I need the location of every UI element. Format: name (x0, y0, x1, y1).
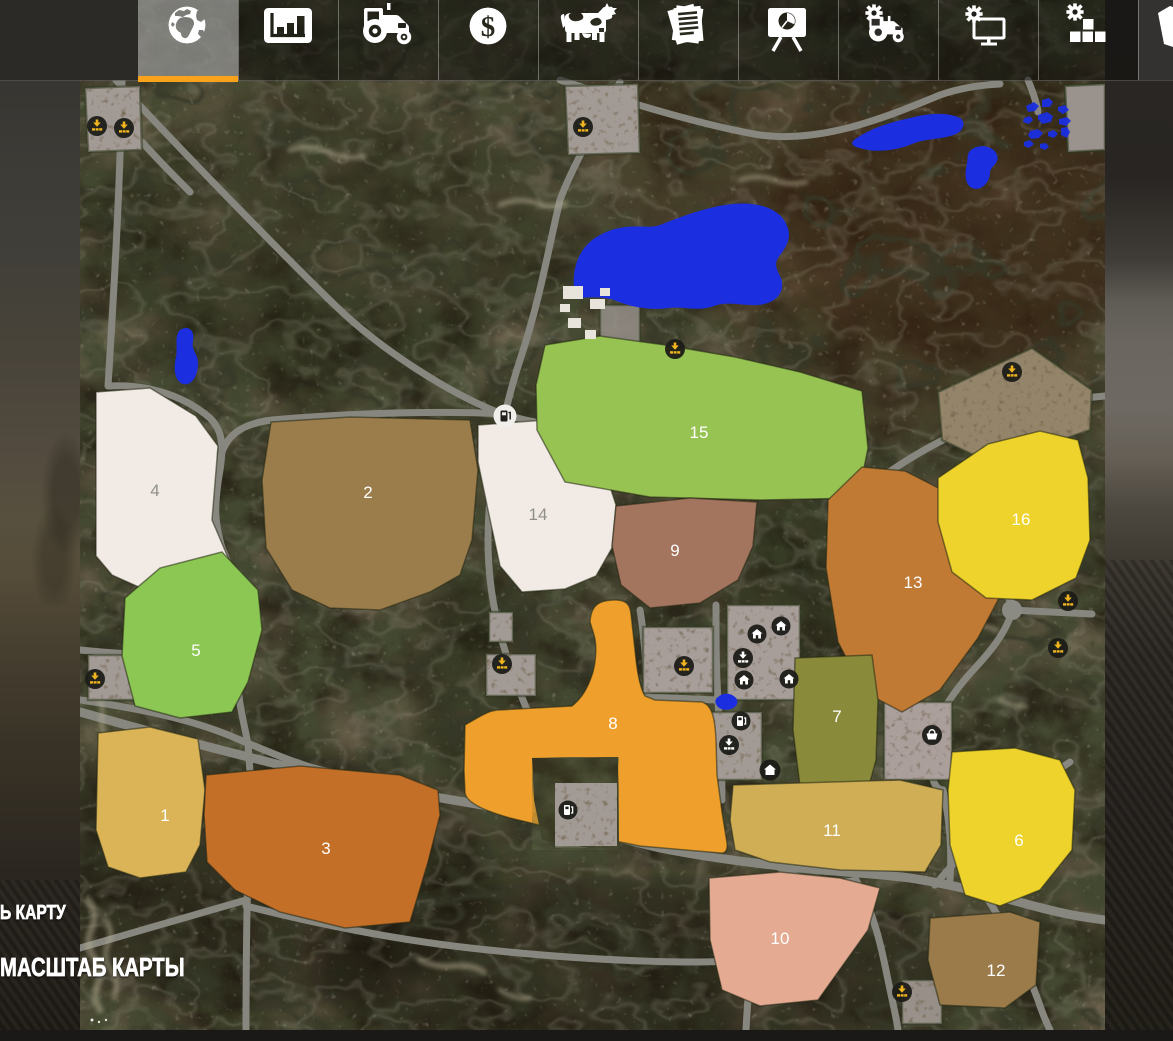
svg-text:6: 6 (1014, 831, 1023, 850)
svg-text:3: 3 (321, 839, 330, 858)
svg-text:8: 8 (608, 714, 617, 733)
svg-text:13: 13 (904, 573, 923, 592)
svg-text:5: 5 (191, 641, 200, 660)
svg-text:4: 4 (150, 481, 159, 500)
svg-text:10: 10 (771, 929, 790, 948)
svg-text:1: 1 (160, 806, 169, 825)
svg-text:15: 15 (690, 423, 709, 442)
svg-text:2: 2 (363, 483, 372, 502)
svg-text:9: 9 (670, 541, 679, 560)
svg-text:7: 7 (832, 707, 841, 726)
svg-text:16: 16 (1012, 510, 1031, 529)
svg-text:14: 14 (529, 505, 548, 524)
svg-text:12: 12 (987, 961, 1006, 980)
svg-text:11: 11 (823, 821, 841, 840)
